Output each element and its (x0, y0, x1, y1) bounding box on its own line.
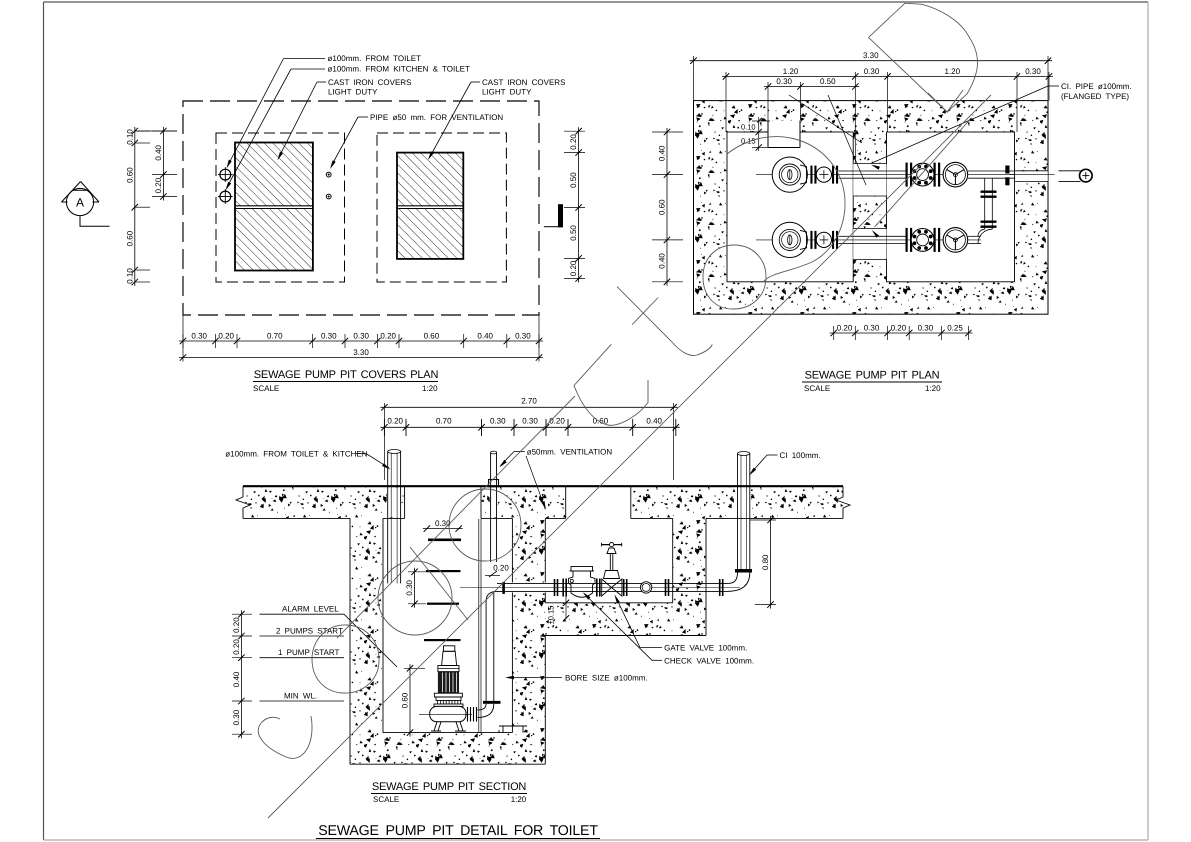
svg-text:0.60: 0.60 (658, 199, 667, 215)
svg-text:0.20: 0.20 (380, 332, 396, 341)
svg-text:LIGHT DUTY: LIGHT DUTY (482, 88, 532, 97)
svg-text:1.20: 1.20 (783, 67, 799, 76)
svg-text:0.40: 0.40 (658, 253, 667, 269)
svg-text:0.20: 0.20 (493, 564, 509, 573)
svg-text:2 PUMPS START: 2 PUMPS START (276, 627, 343, 636)
svg-text:0.20: 0.20 (232, 617, 241, 633)
svg-text:SEWAGE PUMP PIT COVERS PLAN: SEWAGE PUMP PIT COVERS PLAN (254, 369, 439, 381)
svg-text:0.30: 0.30 (321, 332, 337, 341)
svg-text:CI. PIPE ø100mm.: CI. PIPE ø100mm. (1061, 82, 1132, 91)
svg-text:LIGHT DUTY: LIGHT DUTY (328, 88, 378, 97)
svg-text:CAST IRON COVERS: CAST IRON COVERS (328, 78, 411, 87)
svg-text:0.40: 0.40 (232, 671, 241, 687)
svg-text:SCALE: SCALE (253, 384, 279, 393)
svg-text:0.30: 0.30 (918, 324, 934, 333)
svg-text:0.30: 0.30 (864, 67, 880, 76)
svg-text:0.30: 0.30 (515, 332, 531, 341)
svg-text:0.25: 0.25 (947, 324, 963, 333)
svg-text:0.30: 0.30 (353, 332, 369, 341)
svg-text:SCALE: SCALE (373, 795, 399, 804)
svg-text:0.50: 0.50 (569, 172, 578, 188)
svg-text:SEWAGE PUMP PIT SECTION: SEWAGE PUMP PIT SECTION (372, 781, 527, 793)
svg-text:0.60: 0.60 (424, 332, 440, 341)
svg-text:CI 100mm.: CI 100mm. (780, 451, 821, 460)
svg-text:0.30: 0.30 (776, 77, 792, 86)
svg-text:GATE VALVE 100mm.: GATE VALVE 100mm. (664, 644, 747, 653)
svg-text:0.20: 0.20 (232, 639, 241, 655)
svg-text:0.20: 0.20 (387, 417, 403, 426)
svg-text:0.50: 0.50 (820, 77, 836, 86)
svg-text:0.40: 0.40 (477, 332, 493, 341)
svg-text:0.20: 0.20 (218, 332, 234, 341)
svg-text:ø100mm. FROM TOILET & KITCHEN: ø100mm. FROM TOILET & KITCHEN (225, 450, 367, 459)
svg-text:0.30: 0.30 (490, 417, 506, 426)
svg-text:(FLANGED TYPE): (FLANGED TYPE) (1061, 92, 1129, 101)
svg-text:0.20: 0.20 (891, 324, 907, 333)
svg-text:0.30: 0.30 (522, 417, 538, 426)
svg-text:0.30: 0.30 (405, 579, 414, 595)
svg-text:0.40: 0.40 (646, 417, 662, 426)
svg-text:SCALE: SCALE (804, 384, 830, 393)
svg-text:±0.15: ±0.15 (547, 606, 556, 625)
svg-text:0.20: 0.20 (549, 417, 565, 426)
svg-text:1:20: 1:20 (925, 384, 941, 393)
svg-text:BORE SIZE ø100mm.: BORE SIZE ø100mm. (565, 674, 648, 683)
svg-text:0.10: 0.10 (125, 268, 134, 284)
svg-text:1:20: 1:20 (511, 795, 527, 804)
svg-text:PIPE ø50 mm. FOR VENTILATION: PIPE ø50 mm. FOR VENTILATION (370, 113, 503, 122)
svg-text:1.20: 1.20 (945, 67, 961, 76)
svg-text:ø100mm. FROM KITCHEN & TOILET: ø100mm. FROM KITCHEN & TOILET (328, 65, 471, 74)
svg-text:0.20: 0.20 (569, 134, 578, 150)
svg-text:ALARM LEVEL: ALARM LEVEL (282, 605, 339, 614)
svg-text:0.10: 0.10 (741, 123, 756, 132)
svg-text:A: A (76, 196, 84, 210)
svg-text:0.70: 0.70 (267, 332, 283, 341)
svg-text:1 PUMP START: 1 PUMP START (278, 648, 339, 657)
svg-text:0.10: 0.10 (125, 129, 134, 145)
svg-text:3.30: 3.30 (353, 348, 369, 357)
svg-text:0.60: 0.60 (125, 230, 134, 246)
svg-text:0.30: 0.30 (232, 709, 241, 725)
svg-text:0.80: 0.80 (761, 554, 770, 570)
svg-text:0.60: 0.60 (401, 692, 410, 708)
svg-text:0.40: 0.40 (658, 145, 667, 161)
svg-text:ø100mm. FROM TOILET: ø100mm. FROM TOILET (328, 54, 422, 63)
svg-text:1:20: 1:20 (422, 384, 438, 393)
svg-text:0.30: 0.30 (864, 324, 880, 333)
svg-text:3.30: 3.30 (863, 51, 879, 60)
svg-text:MIN WL.: MIN WL. (284, 692, 317, 701)
svg-text:SEWAGE PUMP PIT PLAN: SEWAGE PUMP PIT PLAN (805, 370, 940, 382)
svg-text:SEWAGE PUMP PIT DETAIL FOR TOI: SEWAGE PUMP PIT DETAIL FOR TOILET (318, 823, 598, 839)
svg-text:0.20: 0.20 (837, 324, 853, 333)
svg-text:0.30: 0.30 (191, 332, 207, 341)
svg-text:0.50: 0.50 (569, 225, 578, 241)
svg-text:2.70: 2.70 (521, 397, 537, 406)
svg-text:0.20: 0.20 (154, 177, 163, 193)
svg-text:0.60: 0.60 (125, 167, 134, 183)
svg-text:ø50mm. VENTILATION: ø50mm. VENTILATION (527, 448, 613, 457)
svg-text:0.20: 0.20 (569, 260, 578, 276)
svg-text:0.40: 0.40 (154, 144, 163, 160)
svg-text:0.30: 0.30 (1025, 67, 1041, 76)
svg-text:0.70: 0.70 (436, 417, 452, 426)
svg-text:CAST IRON COVERS: CAST IRON COVERS (482, 78, 565, 87)
svg-text:CHECK VALVE 100mm.: CHECK VALVE 100mm. (664, 656, 754, 665)
